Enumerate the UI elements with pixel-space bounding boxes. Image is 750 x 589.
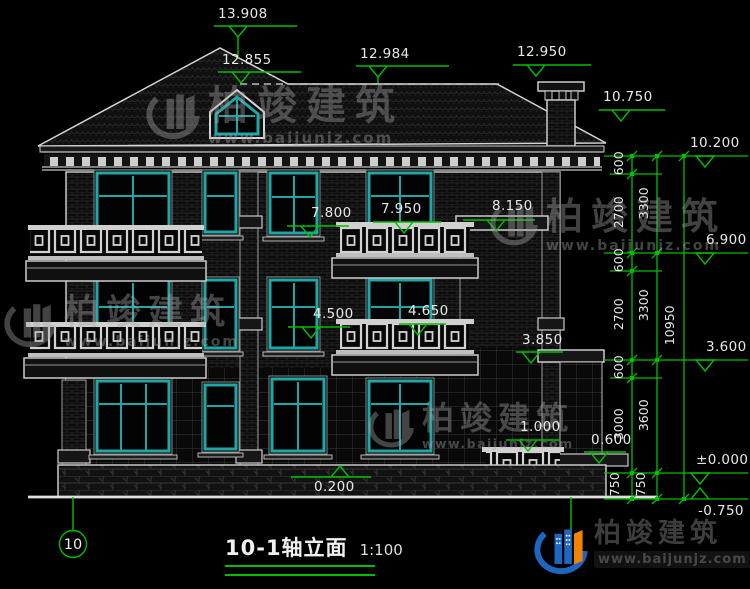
watermark-url: www.baijunjz.com: [64, 334, 239, 350]
brand-url: www.baijunjz.com: [594, 551, 750, 568]
elevation-label-12984: 12.984: [360, 48, 410, 62]
elevation-label-4500: 4.500: [313, 308, 354, 322]
dim-label-750: 750: [635, 452, 648, 516]
brand-logo-block: 柏竣建筑 www.baijunjz.com: [534, 520, 750, 580]
elevation-label-12950: 12.950: [517, 46, 567, 60]
dim-label-3000: 3000: [613, 392, 626, 456]
title-underline: [225, 565, 375, 576]
watermark-logo-icon: [146, 86, 200, 144]
elevation-label-7800: 7.800: [311, 207, 352, 221]
window-1f-b: [198, 382, 243, 457]
elevation-label-4650: 4.650: [408, 305, 449, 319]
watermark-url: www.baijunjz.com: [546, 238, 726, 254]
brand-name: 柏竣建筑: [594, 520, 750, 548]
elevation-label-12855: 12.855: [222, 54, 272, 68]
watermark-left: 柏竣建筑 www.baijunjz.com: [4, 296, 239, 352]
dim-label-3300: 3300: [638, 171, 651, 235]
brand-logo-icon: [534, 520, 588, 580]
dim-label-600: 600: [613, 335, 626, 399]
elevation-label-0000: ±0.000: [696, 454, 748, 468]
elevation-label-3600: 3.600: [706, 341, 747, 355]
axis-label: 10: [61, 537, 85, 553]
elevation-label-7950: 7.950: [381, 203, 422, 217]
watermark-logo-icon: [4, 296, 56, 352]
window-3f-b: [198, 170, 243, 240]
dim-label-3600: 3600: [638, 383, 651, 447]
watermark-top: 柏竣建筑 www.baijunjz.com: [146, 86, 404, 147]
dim-label-3300: 3300: [638, 273, 651, 337]
watermark-brand: 柏竣建筑: [64, 296, 239, 332]
cornice: [40, 146, 604, 170]
watermark-logo-icon: [368, 402, 414, 452]
elevation-label-6900: 6.900: [706, 234, 747, 248]
watermark-url: www.baijunjz.com: [422, 436, 574, 451]
window-1f-c: [264, 376, 332, 459]
window-1f-a: [89, 378, 177, 459]
dim-label-750: 750: [609, 452, 622, 516]
balcony-2f-mid: [332, 319, 478, 375]
elevation-label-10200: 10.200: [690, 137, 740, 151]
balcony-3f-mid: [332, 222, 478, 278]
drawing-title: 10-1轴立面: [225, 536, 348, 560]
dim-label-10950: 10950: [664, 293, 677, 357]
watermark-url: www.baijunjz.com: [208, 129, 404, 147]
elevation-label-13908: 13.908: [218, 8, 268, 22]
elevation-label-8150: 8.150: [492, 200, 533, 214]
watermark-brand: 柏竣建筑: [208, 86, 404, 127]
drawing-title-block: 10-1轴立面1:100: [225, 532, 403, 576]
elevation-label-1000: 1.000: [520, 421, 561, 435]
drawing-scale: 1:100: [360, 541, 403, 559]
balcony-3f-left: [26, 225, 206, 281]
elevation-label-0200: 0.200: [314, 481, 355, 495]
elevation-label-10750: 10.750: [603, 91, 653, 105]
elevation-label-neg750: -0.750: [698, 505, 744, 519]
elevation-label-3850: 3.850: [522, 334, 563, 348]
